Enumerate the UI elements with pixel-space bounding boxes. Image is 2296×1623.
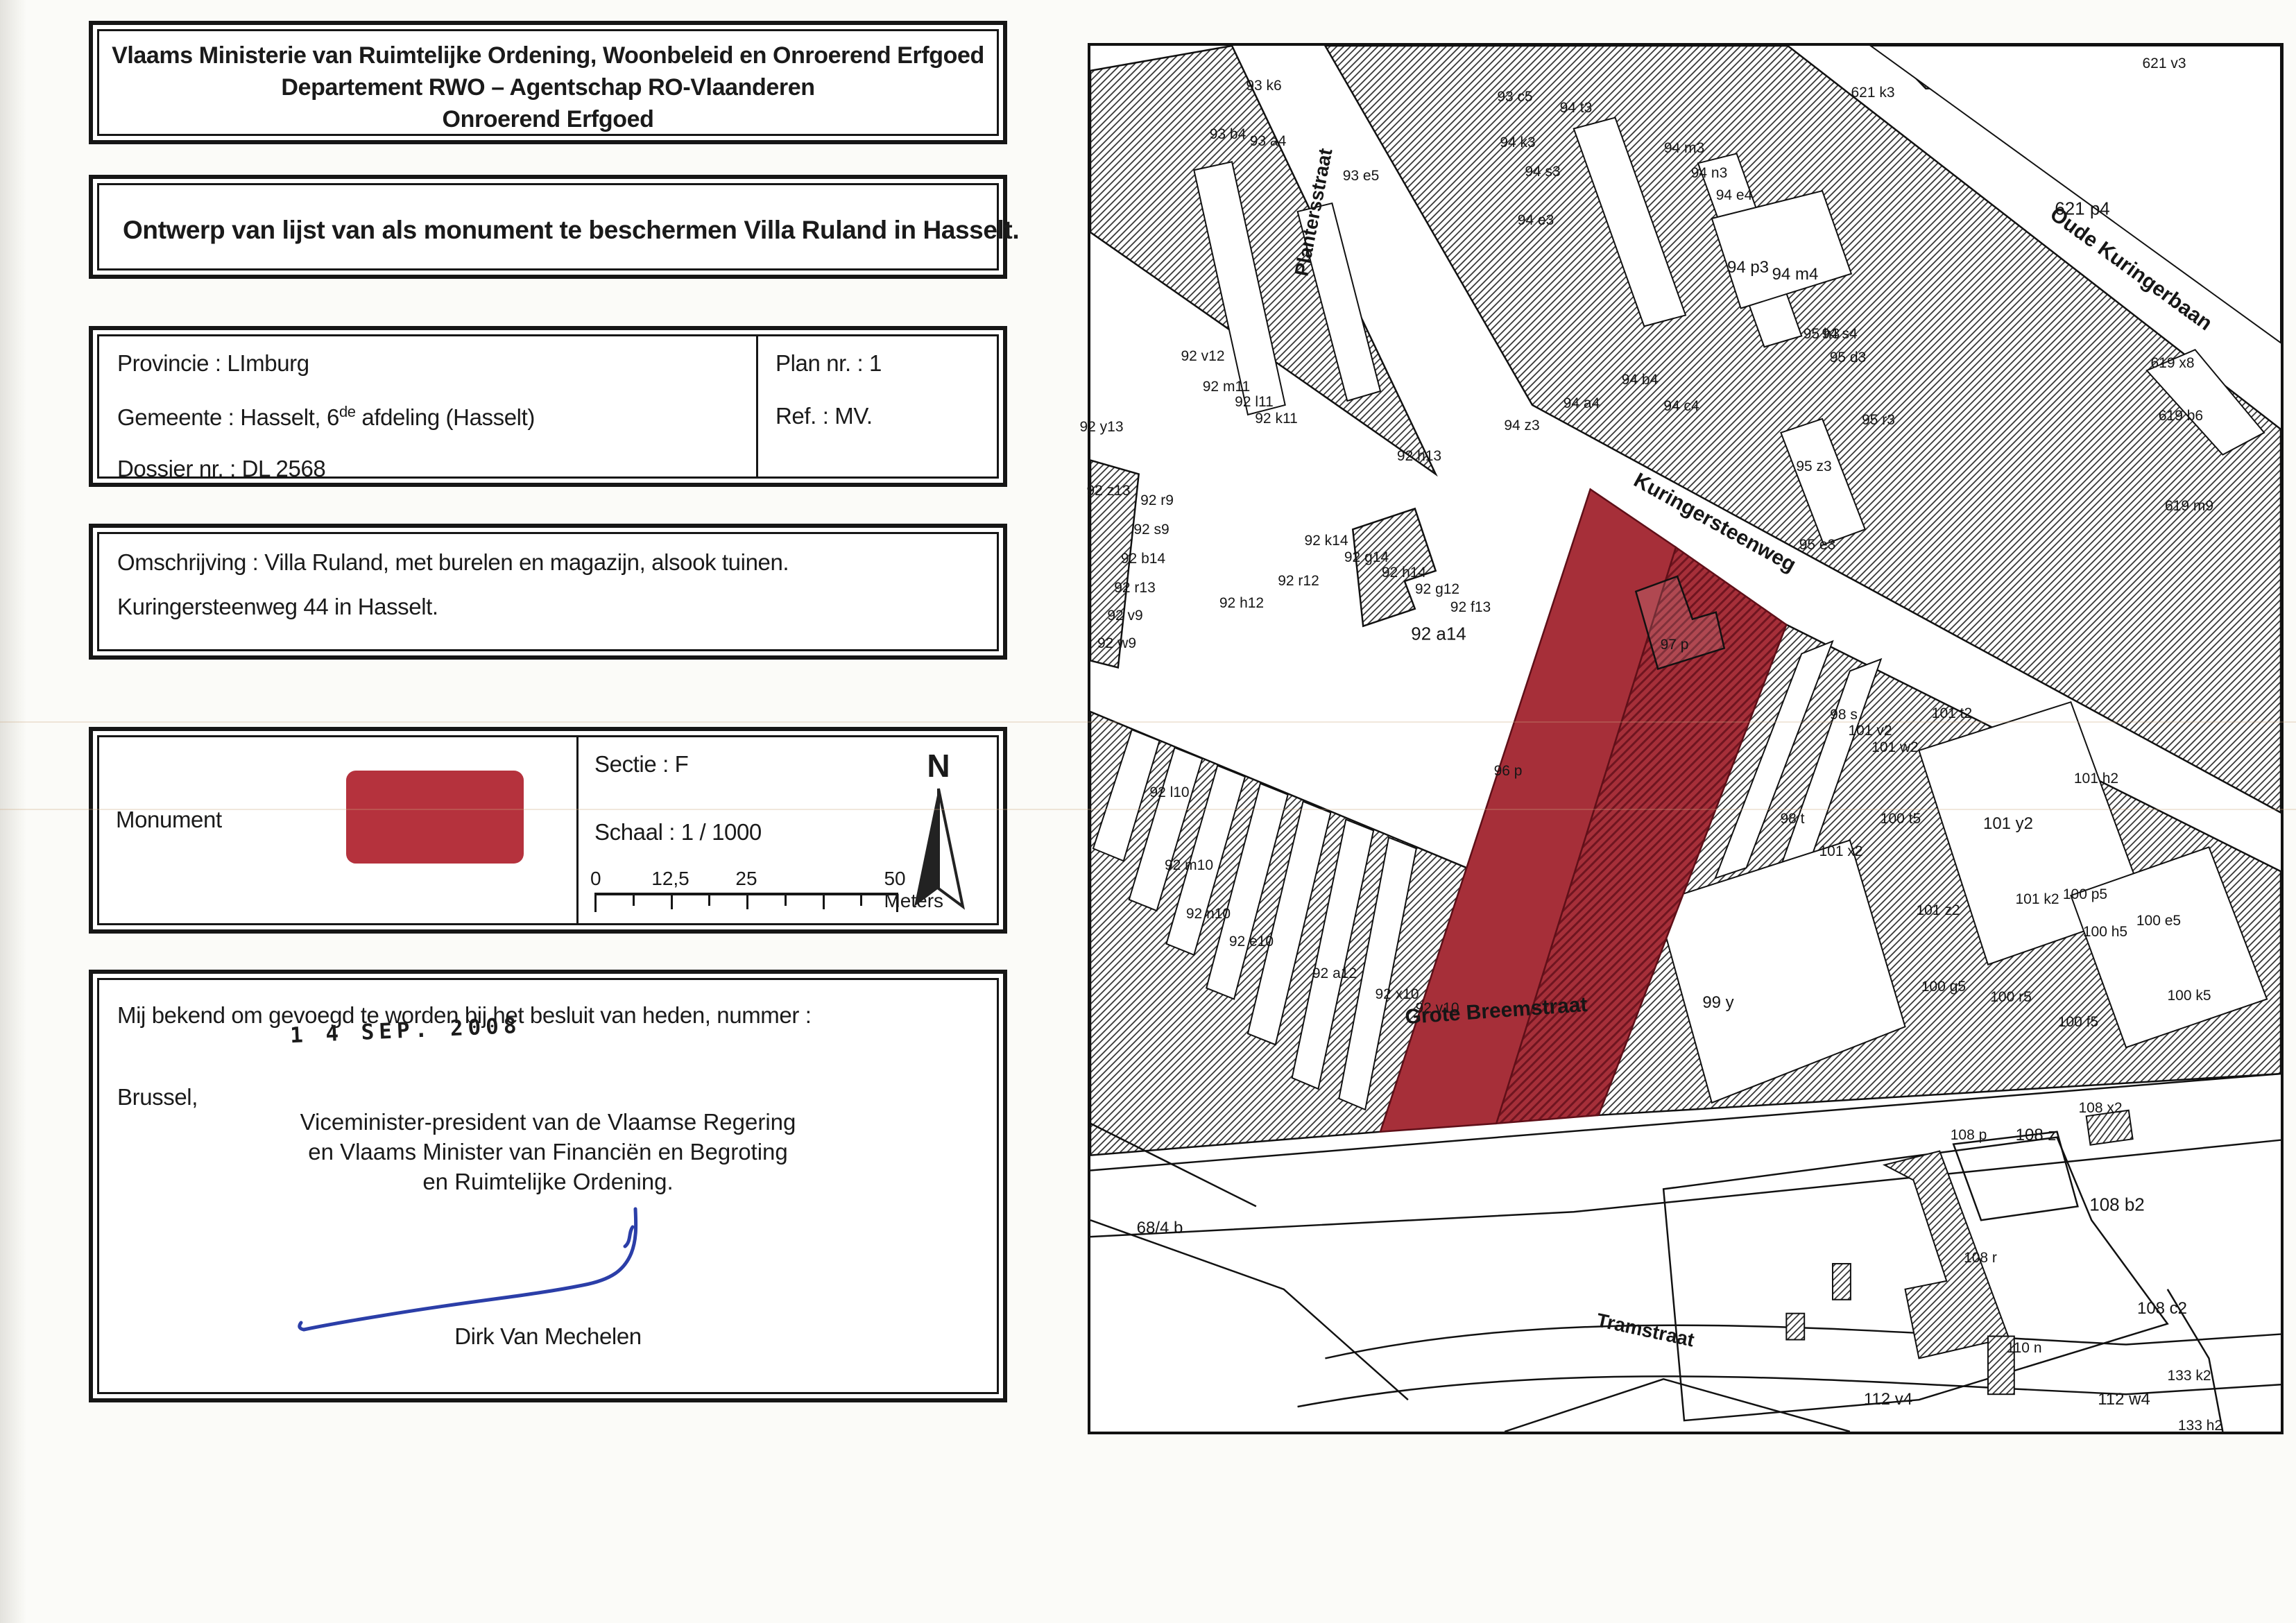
title-box-border: Ontwerp van lijst van als monument te be… bbox=[97, 183, 999, 270]
parcel-label: 94 b4 bbox=[1622, 372, 1659, 388]
parcel-label: 92 a12 bbox=[1312, 965, 1357, 982]
plan-line: Plan nr. : 1 bbox=[776, 350, 882, 377]
parcel-label: 92 e10 bbox=[1229, 934, 1274, 950]
signature-ink bbox=[291, 1203, 652, 1342]
info-box-border: Provincie : LImburg Gemeente : Hasselt, … bbox=[97, 334, 999, 479]
legend-sectie: Sectie : F bbox=[594, 751, 688, 778]
legend-box: Monument Sectie : F Schaal : 1 / 1000 0 … bbox=[89, 727, 1007, 934]
parcel-label: 92 v12 bbox=[1181, 348, 1224, 365]
scan-artifact-line bbox=[0, 809, 2296, 810]
parcel-label: 92 s9 bbox=[1133, 522, 1169, 538]
signer-name: Dirk Van Mechelen bbox=[89, 1323, 1007, 1350]
scale-tick bbox=[896, 894, 898, 912]
parcel-label: 94 e3 bbox=[1518, 212, 1554, 229]
parcel-label: 92 g12 bbox=[1415, 581, 1459, 598]
legend-divider bbox=[576, 737, 579, 923]
parcel-label: 112 w4 bbox=[2098, 1390, 2150, 1409]
parcel-label: 98 t bbox=[1780, 811, 1804, 827]
parcel-label: 100 f5 bbox=[2058, 1014, 2098, 1031]
parcel-label: 99 y bbox=[1702, 993, 1733, 1013]
header-line-1: Vlaams Ministerie van Ruimtelijke Ordeni… bbox=[99, 42, 997, 69]
parcel-label: 133 k2 bbox=[2167, 1368, 2211, 1384]
parcel-label: 619 m9 bbox=[2165, 498, 2213, 515]
north-arrow-icon bbox=[907, 784, 970, 913]
parcel-label: 101 k2 bbox=[2015, 891, 2059, 908]
street-label: Kuringersteenweg bbox=[1629, 469, 1799, 578]
scale-tick bbox=[746, 894, 748, 909]
parcel-label: 100 e5 bbox=[2136, 913, 2181, 929]
parcel-label: 100 k5 bbox=[2167, 988, 2211, 1004]
street-label: Oude Kuringerbaan bbox=[2046, 203, 2217, 336]
parcel-label: 92 y13 bbox=[1079, 419, 1123, 436]
parcel-label: 68/4 b bbox=[1137, 1219, 1183, 1238]
parcel-label: 92 h13 bbox=[1397, 448, 1441, 465]
legend-box-border: Monument Sectie : F Schaal : 1 / 1000 0 … bbox=[97, 735, 999, 925]
parcel-label: 93 b4 bbox=[1210, 126, 1246, 143]
parcel-label: 93 e5 bbox=[1343, 168, 1380, 184]
parcel-label: 94 s3 bbox=[1525, 164, 1560, 180]
parcel-label: 133 h2 bbox=[2178, 1418, 2222, 1434]
parcel-label: 94 p3 bbox=[1727, 258, 1769, 277]
info-box: Provincie : LImburg Gemeente : Hasselt, … bbox=[89, 326, 1007, 487]
gemeente-line: Gemeente : Hasselt, 6de afdeling (Hassel… bbox=[117, 403, 535, 431]
info-divider bbox=[756, 336, 758, 476]
parcel-label: 101 y2 bbox=[1983, 814, 2033, 834]
street-label: Tramstraat bbox=[1595, 1309, 1697, 1351]
parcel-label: 95 h3 bbox=[1804, 326, 1840, 343]
north-arrow: N bbox=[904, 747, 973, 913]
parcel-label: 92 m10 bbox=[1165, 857, 1213, 874]
parcel-label: 100 g5 bbox=[1921, 979, 1966, 995]
provincie-line: Provincie : LImburg bbox=[117, 350, 309, 377]
scale-tick bbox=[708, 894, 710, 906]
parcel-label: 92 k11 bbox=[1255, 411, 1298, 427]
parcel-label: 621 k3 bbox=[1851, 85, 1894, 101]
parcel-label: 93 a4 bbox=[1250, 133, 1287, 150]
parcel-label: 94 z3 bbox=[1504, 418, 1539, 434]
map-labels-layer: PlantersstraatOude KuringerbaanKuringers… bbox=[1090, 46, 2281, 1432]
header-box-border: Vlaams Ministerie van Ruimtelijke Ordeni… bbox=[97, 29, 999, 136]
parcel-label: 92 k14 bbox=[1304, 533, 1348, 549]
parcel-label: 94 e4 bbox=[1716, 187, 1753, 204]
header-line-3: Onroerend Erfgoed bbox=[99, 106, 997, 133]
parcel-label: 108 b2 bbox=[2089, 1194, 2145, 1216]
parcel-label: 94 m3 bbox=[1664, 140, 1704, 157]
omschrijving-box-border: Omschrijving : Villa Ruland, met burelen… bbox=[97, 532, 999, 651]
scale-tick bbox=[785, 894, 787, 906]
legend-monument-label: Monument bbox=[116, 807, 222, 833]
cadastral-map: PlantersstraatOude KuringerbaanKuringers… bbox=[1088, 43, 2284, 1434]
minister-title-2: en Vlaams Minister van Financiën en Begr… bbox=[89, 1137, 1007, 1167]
ref-line: Ref. : MV. bbox=[776, 403, 873, 429]
minister-title-3: en Ruimtelijke Ordening. bbox=[89, 1167, 1007, 1196]
parcel-label: 619 x8 bbox=[2150, 355, 2194, 372]
monument-color-swatch bbox=[346, 771, 524, 864]
parcel-label: 92 m11 bbox=[1203, 379, 1251, 395]
parcel-label: 108 p bbox=[1951, 1127, 1987, 1144]
scale-tick bbox=[860, 894, 862, 906]
parcel-label: 92 h12 bbox=[1219, 595, 1264, 612]
scan-edge-shadow bbox=[0, 0, 26, 1623]
parcel-label: 101 t2 bbox=[1932, 705, 1972, 722]
scale-tick bbox=[823, 894, 825, 909]
header-line-2: Departement RWO – Agentschap RO-Vlaander… bbox=[99, 74, 997, 101]
parcel-label: 94 m4 bbox=[1772, 265, 1819, 284]
parcel-label: 95 r3 bbox=[1862, 412, 1895, 429]
parcel-label: 92 h14 bbox=[1382, 565, 1426, 581]
legend-schaal: Schaal : 1 / 1000 bbox=[594, 819, 762, 845]
parcel-label: 621 p4 bbox=[2055, 198, 2110, 220]
parcel-label: 92 z13 bbox=[1086, 483, 1130, 499]
document-title: Ontwerp van lijst van als monument te be… bbox=[123, 216, 1019, 245]
parcel-label: 94 a4 bbox=[1563, 395, 1600, 412]
parcel-label: 108 z bbox=[2016, 1126, 2057, 1145]
parcel-label: 92 b14 bbox=[1121, 551, 1165, 567]
scale-bar: 0 12,5 25 50 Meters bbox=[594, 873, 898, 912]
parcel-label: 101 w2 bbox=[1871, 739, 1919, 756]
parcel-label: 95 e3 bbox=[1799, 537, 1836, 553]
parcel-label: 92 r13 bbox=[1114, 580, 1156, 596]
street-label: Plantersstraat bbox=[1290, 146, 1337, 277]
parcel-label: 97 p bbox=[1661, 637, 1689, 653]
parcel-label: 92 l11 bbox=[1235, 394, 1274, 411]
parcel-label: 101 v2 bbox=[1848, 723, 1892, 739]
parcel-label: 92 n10 bbox=[1186, 906, 1231, 922]
header-box: Vlaams Ministerie van Ruimtelijke Ordeni… bbox=[89, 21, 1007, 144]
parcel-label: 108 c2 bbox=[2137, 1299, 2187, 1319]
parcel-label: 101 z2 bbox=[1916, 902, 1960, 919]
parcel-label: 108 r bbox=[1964, 1250, 1997, 1266]
omschrijving-line-1: Omschrijving : Villa Ruland, met burelen… bbox=[117, 549, 789, 576]
omschrijving-box: Omschrijving : Villa Ruland, met burelen… bbox=[89, 524, 1007, 660]
parcel-label: 101 h2 bbox=[2074, 771, 2118, 787]
parcel-label: 94 c4 bbox=[1663, 398, 1699, 415]
parcel-label: 92 a14 bbox=[1411, 624, 1466, 645]
parcel-label: 92 w9 bbox=[1097, 635, 1136, 652]
parcel-label: 92 x10 bbox=[1375, 986, 1419, 1003]
parcel-label: 92 v10 bbox=[1415, 1000, 1459, 1017]
parcel-label: 100 t5 bbox=[1881, 811, 1921, 827]
parcel-label: 92 r12 bbox=[1278, 573, 1319, 590]
parcel-label: 93 c5 bbox=[1497, 89, 1532, 105]
parcel-label: 92 r9 bbox=[1140, 492, 1174, 509]
parcel-label: 94 t3 bbox=[1560, 100, 1593, 117]
parcel-label: 101 x2 bbox=[1819, 843, 1862, 860]
parcel-label: 108 x2 bbox=[2078, 1100, 2122, 1117]
scanned-document-page: Vlaams Ministerie van Ruimtelijke Ordeni… bbox=[0, 0, 2296, 1623]
dossier-line: Dossier nr. : DL 2568 bbox=[117, 456, 325, 482]
parcel-label: 621 v3 bbox=[2142, 55, 2186, 72]
gemeente-text-rest: afdeling (Hasselt) bbox=[356, 404, 535, 430]
title-box: Ontwerp van lijst van als monument te be… bbox=[89, 175, 1007, 279]
minister-title-1: Viceminister-president van de Vlaamse Re… bbox=[89, 1107, 1007, 1137]
omschrijving-line-2: Kuringersteenweg 44 in Hasselt. bbox=[117, 594, 438, 620]
scale-tick bbox=[633, 894, 635, 906]
parcel-label: 95 d3 bbox=[1830, 350, 1867, 366]
parcel-label: 92 l10 bbox=[1149, 784, 1189, 801]
parcel-label: 92 f13 bbox=[1450, 599, 1491, 616]
parcel-label: 92 v9 bbox=[1107, 608, 1142, 624]
parcel-label: 94 n3 bbox=[1691, 165, 1728, 182]
scale-label-25: 25 bbox=[735, 868, 757, 890]
parcel-label: 100 h5 bbox=[2083, 924, 2127, 941]
parcel-label: 112 v4 bbox=[1864, 1390, 1912, 1409]
parcel-label: 100 p5 bbox=[2063, 886, 2107, 903]
parcel-label: 619 b6 bbox=[2159, 408, 2203, 424]
north-letter: N bbox=[904, 747, 973, 784]
parcel-label: 92 g14 bbox=[1344, 549, 1389, 566]
parcel-label: 95 z3 bbox=[1796, 458, 1831, 475]
gemeente-sup: de bbox=[339, 403, 356, 420]
scale-label-12-5: 12,5 bbox=[651, 868, 689, 890]
parcel-label: 94 k3 bbox=[1500, 135, 1535, 151]
parcel-label: 96 p bbox=[1494, 763, 1523, 780]
scale-tick bbox=[671, 894, 673, 909]
parcel-label: 110 n bbox=[2007, 1340, 2042, 1357]
minister-titles: Viceminister-president van de Vlaamse Re… bbox=[89, 1107, 1007, 1196]
scale-label-0: 0 bbox=[590, 868, 601, 890]
scan-artifact-line bbox=[0, 721, 2296, 723]
scale-tick bbox=[594, 894, 597, 912]
parcel-label: 93 k6 bbox=[1246, 78, 1281, 94]
gemeente-text: Gemeente : Hasselt, 6 bbox=[117, 404, 339, 430]
parcel-label: 100 r5 bbox=[1990, 989, 2032, 1006]
